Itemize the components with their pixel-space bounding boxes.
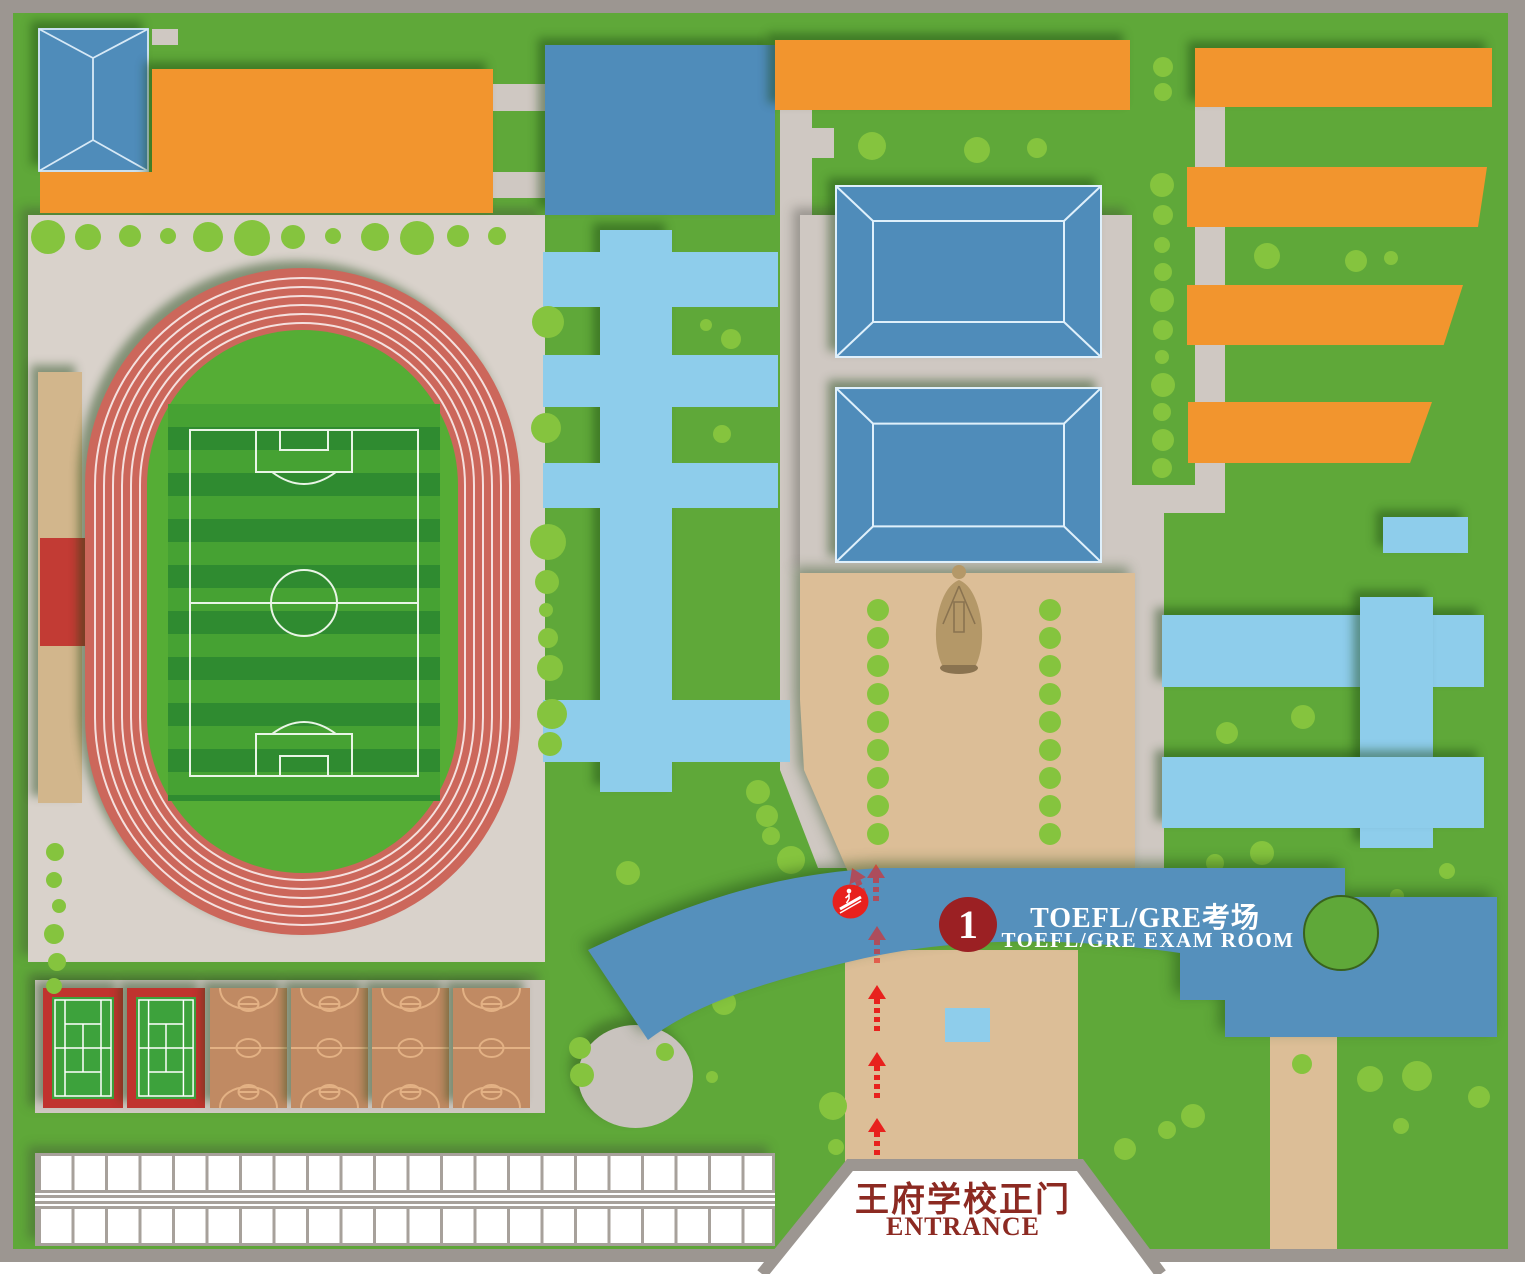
tennis-court-lines (136, 997, 196, 1099)
tree-dot (819, 1092, 847, 1120)
tree-dot (1114, 1138, 1136, 1160)
tree-dot (1216, 722, 1238, 744)
tree-dot (1206, 854, 1224, 872)
tree-dot (325, 228, 341, 244)
tree-dot (777, 846, 805, 874)
bike-shed-row (35, 1206, 775, 1246)
tree-dot (1155, 350, 1169, 364)
tree-dot (1154, 263, 1172, 281)
route-arrow (868, 1052, 886, 1098)
tree-dot (1027, 138, 1047, 158)
tree-dot (1039, 683, 1061, 705)
tree-dot (48, 953, 66, 971)
tree-dot (713, 425, 731, 443)
building-comb-wing-1 (543, 252, 778, 307)
building-comb-wing-3 (543, 463, 778, 508)
tree-dot (867, 627, 889, 649)
tree-dot (1345, 250, 1367, 272)
tree-dot (1153, 320, 1173, 340)
tree-dot (1153, 205, 1173, 225)
bike-shed-row (35, 1153, 775, 1193)
tree-dot (1154, 237, 1170, 253)
basketball-court (372, 988, 449, 1108)
basketball-court (291, 988, 368, 1108)
tree-dot (1393, 1118, 1409, 1134)
route-arrow-tail (855, 880, 867, 897)
route-arrow (868, 926, 886, 964)
campus-map: 1 TOEFL/GRE考场 TOEFL/GRE EXAM ROOM (0, 0, 1525, 1274)
tree-dot (867, 795, 889, 817)
basketball-court-lines (210, 988, 287, 1108)
route-arrow-tail (873, 878, 879, 904)
exam-room-label-en: TOEFL/GRE EXAM ROOM (1002, 928, 1295, 953)
tree-dot (1039, 795, 1061, 817)
route-arrow-head (867, 864, 885, 878)
tree-dot (1039, 711, 1061, 733)
tree-dot (530, 524, 566, 560)
gatehouse (945, 1008, 990, 1042)
building-sky-bar-south (1162, 757, 1484, 828)
map-border-top (0, 0, 1525, 13)
route-arrow (867, 864, 885, 904)
tree-dot (447, 225, 469, 247)
tree-dot (1152, 429, 1174, 451)
basketball-court-lines (372, 988, 449, 1108)
route-arrow-tail (874, 1132, 880, 1164)
basketball-court (453, 988, 530, 1108)
tree-dot (700, 319, 712, 331)
map-border-left (0, 0, 13, 1262)
exam-room-marker: 1 (939, 897, 997, 952)
route-arrow-tail (874, 999, 880, 1031)
pitch-markings (168, 404, 440, 801)
tree-dot (46, 978, 62, 994)
basketball-court-lines (453, 988, 530, 1108)
map-border-right (1508, 0, 1525, 1262)
tree-dot (762, 827, 780, 845)
tree-dot (52, 899, 66, 913)
grandstand-center (40, 538, 85, 646)
tree-dot (867, 767, 889, 789)
hip-roof-lines (38, 28, 149, 172)
tree-dot (1153, 57, 1173, 77)
tree-dot (1158, 1121, 1176, 1139)
building-orange-right-4 (1188, 402, 1432, 463)
tree-dot (1039, 627, 1061, 649)
tree-dot (44, 924, 64, 944)
tree-dot (538, 732, 562, 756)
tree-dot (1402, 1061, 1432, 1091)
tree-dot (1150, 173, 1174, 197)
route-arrow-head (868, 926, 886, 940)
tree-dot (1154, 83, 1172, 101)
tree-dot (1151, 373, 1175, 397)
tree-dot (234, 220, 270, 256)
building-sky-small (1383, 517, 1468, 553)
route-arrow-head (868, 1052, 886, 1066)
tree-dot (1250, 841, 1274, 865)
hip-roof-lines (835, 387, 1102, 563)
tree-dot (1468, 1086, 1490, 1108)
tree-dot (858, 132, 886, 160)
tree-dot (964, 137, 990, 163)
tree-dot (867, 711, 889, 733)
entrance-label-en: ENTRANCE (886, 1212, 1040, 1242)
tree-dot (569, 1037, 591, 1059)
tree-dot (706, 1071, 718, 1083)
path-stub-top-c (152, 29, 178, 45)
tennis-court (43, 988, 123, 1108)
building-orange-right-3 (1187, 285, 1463, 345)
route-arrow-tail (874, 1066, 880, 1098)
tree-dot (656, 1043, 674, 1061)
tree-dot (1291, 705, 1315, 729)
tree-dot (281, 225, 305, 249)
roundabout (578, 1025, 693, 1128)
tree-dot (1039, 767, 1061, 789)
tree-dot (1357, 1066, 1383, 1092)
tree-dot (46, 843, 64, 861)
tree-dot (1254, 243, 1280, 269)
tree-dot (531, 413, 561, 443)
tree-dot (538, 628, 558, 648)
tree-dot (712, 991, 736, 1015)
tree-dot (1150, 288, 1174, 312)
tree-dot (361, 223, 389, 251)
tree-dot (75, 224, 101, 250)
path-vertical-right-mid (1130, 485, 1164, 880)
tree-dot (160, 228, 176, 244)
building-sky-bar-north (1162, 615, 1484, 687)
hip-roof-lines (835, 185, 1102, 358)
tree-dot (1152, 458, 1172, 478)
building-comb-wing-2 (543, 355, 778, 407)
tree-dot (532, 306, 564, 338)
tree-dot (1039, 823, 1061, 845)
tree-dot (828, 1139, 844, 1155)
building-comb-wing-4 (543, 700, 790, 762)
bike-shed-divider (35, 1193, 775, 1206)
tree-dot (570, 1063, 594, 1087)
path-stub (810, 128, 834, 158)
tree-dot (1292, 1054, 1312, 1074)
tree-dot (867, 599, 889, 621)
tree-dot (867, 655, 889, 677)
tree-dot (31, 220, 65, 254)
tree-dot (867, 683, 889, 705)
tree-dot (867, 823, 889, 845)
building-orange-topleft (152, 69, 493, 213)
football-pitch (168, 404, 440, 801)
tree-dot (756, 805, 778, 827)
route-arrow (868, 1118, 886, 1164)
building-orange-midtop (775, 40, 1130, 110)
tree-dot (119, 225, 141, 247)
tree-dot (193, 222, 223, 252)
tree-dot (616, 861, 640, 885)
building-hall-south (835, 387, 1102, 563)
route-arrow-tail (874, 940, 880, 964)
tree-dot (721, 329, 741, 349)
map-border-bottom (0, 1249, 1525, 1262)
confucius-statue (928, 562, 990, 677)
tree-dot (488, 227, 506, 245)
tree-dot (1439, 863, 1455, 879)
path-stub-top-a (493, 84, 545, 111)
route-arrow (868, 985, 886, 1031)
tree-dot (400, 221, 434, 255)
tree-dot (755, 958, 773, 976)
path-stub-top-b (493, 172, 545, 198)
bike-shed (35, 1153, 775, 1246)
building-blue-topleft (38, 28, 149, 172)
tree-dot (537, 699, 567, 729)
route-arrow-head (868, 985, 886, 999)
tree-dot (1039, 739, 1061, 761)
tree-dot (46, 872, 62, 888)
basketball-court-lines (291, 988, 368, 1108)
tree-dot (1039, 655, 1061, 677)
tree-dot (535, 570, 559, 594)
tree-dot (746, 780, 770, 804)
tree-dot (1181, 1104, 1205, 1128)
building-orange-right-1 (1195, 48, 1492, 107)
tree-dot (1153, 403, 1171, 421)
tree-dot (1390, 889, 1404, 903)
basketball-court (210, 988, 287, 1108)
building-blue-midtop (545, 45, 775, 215)
building-orange-topleft-wing (40, 172, 152, 213)
tennis-court (127, 988, 205, 1108)
building-hall-north (835, 185, 1102, 358)
tennis-court-lines (52, 997, 114, 1099)
tree-dot (1384, 251, 1398, 265)
tree-dot (1039, 599, 1061, 621)
tree-dot (539, 603, 553, 617)
tree-dot (867, 739, 889, 761)
building-orange-right-2 (1187, 167, 1487, 227)
route-arrow-head (868, 1118, 886, 1132)
tree-dot (537, 655, 563, 681)
